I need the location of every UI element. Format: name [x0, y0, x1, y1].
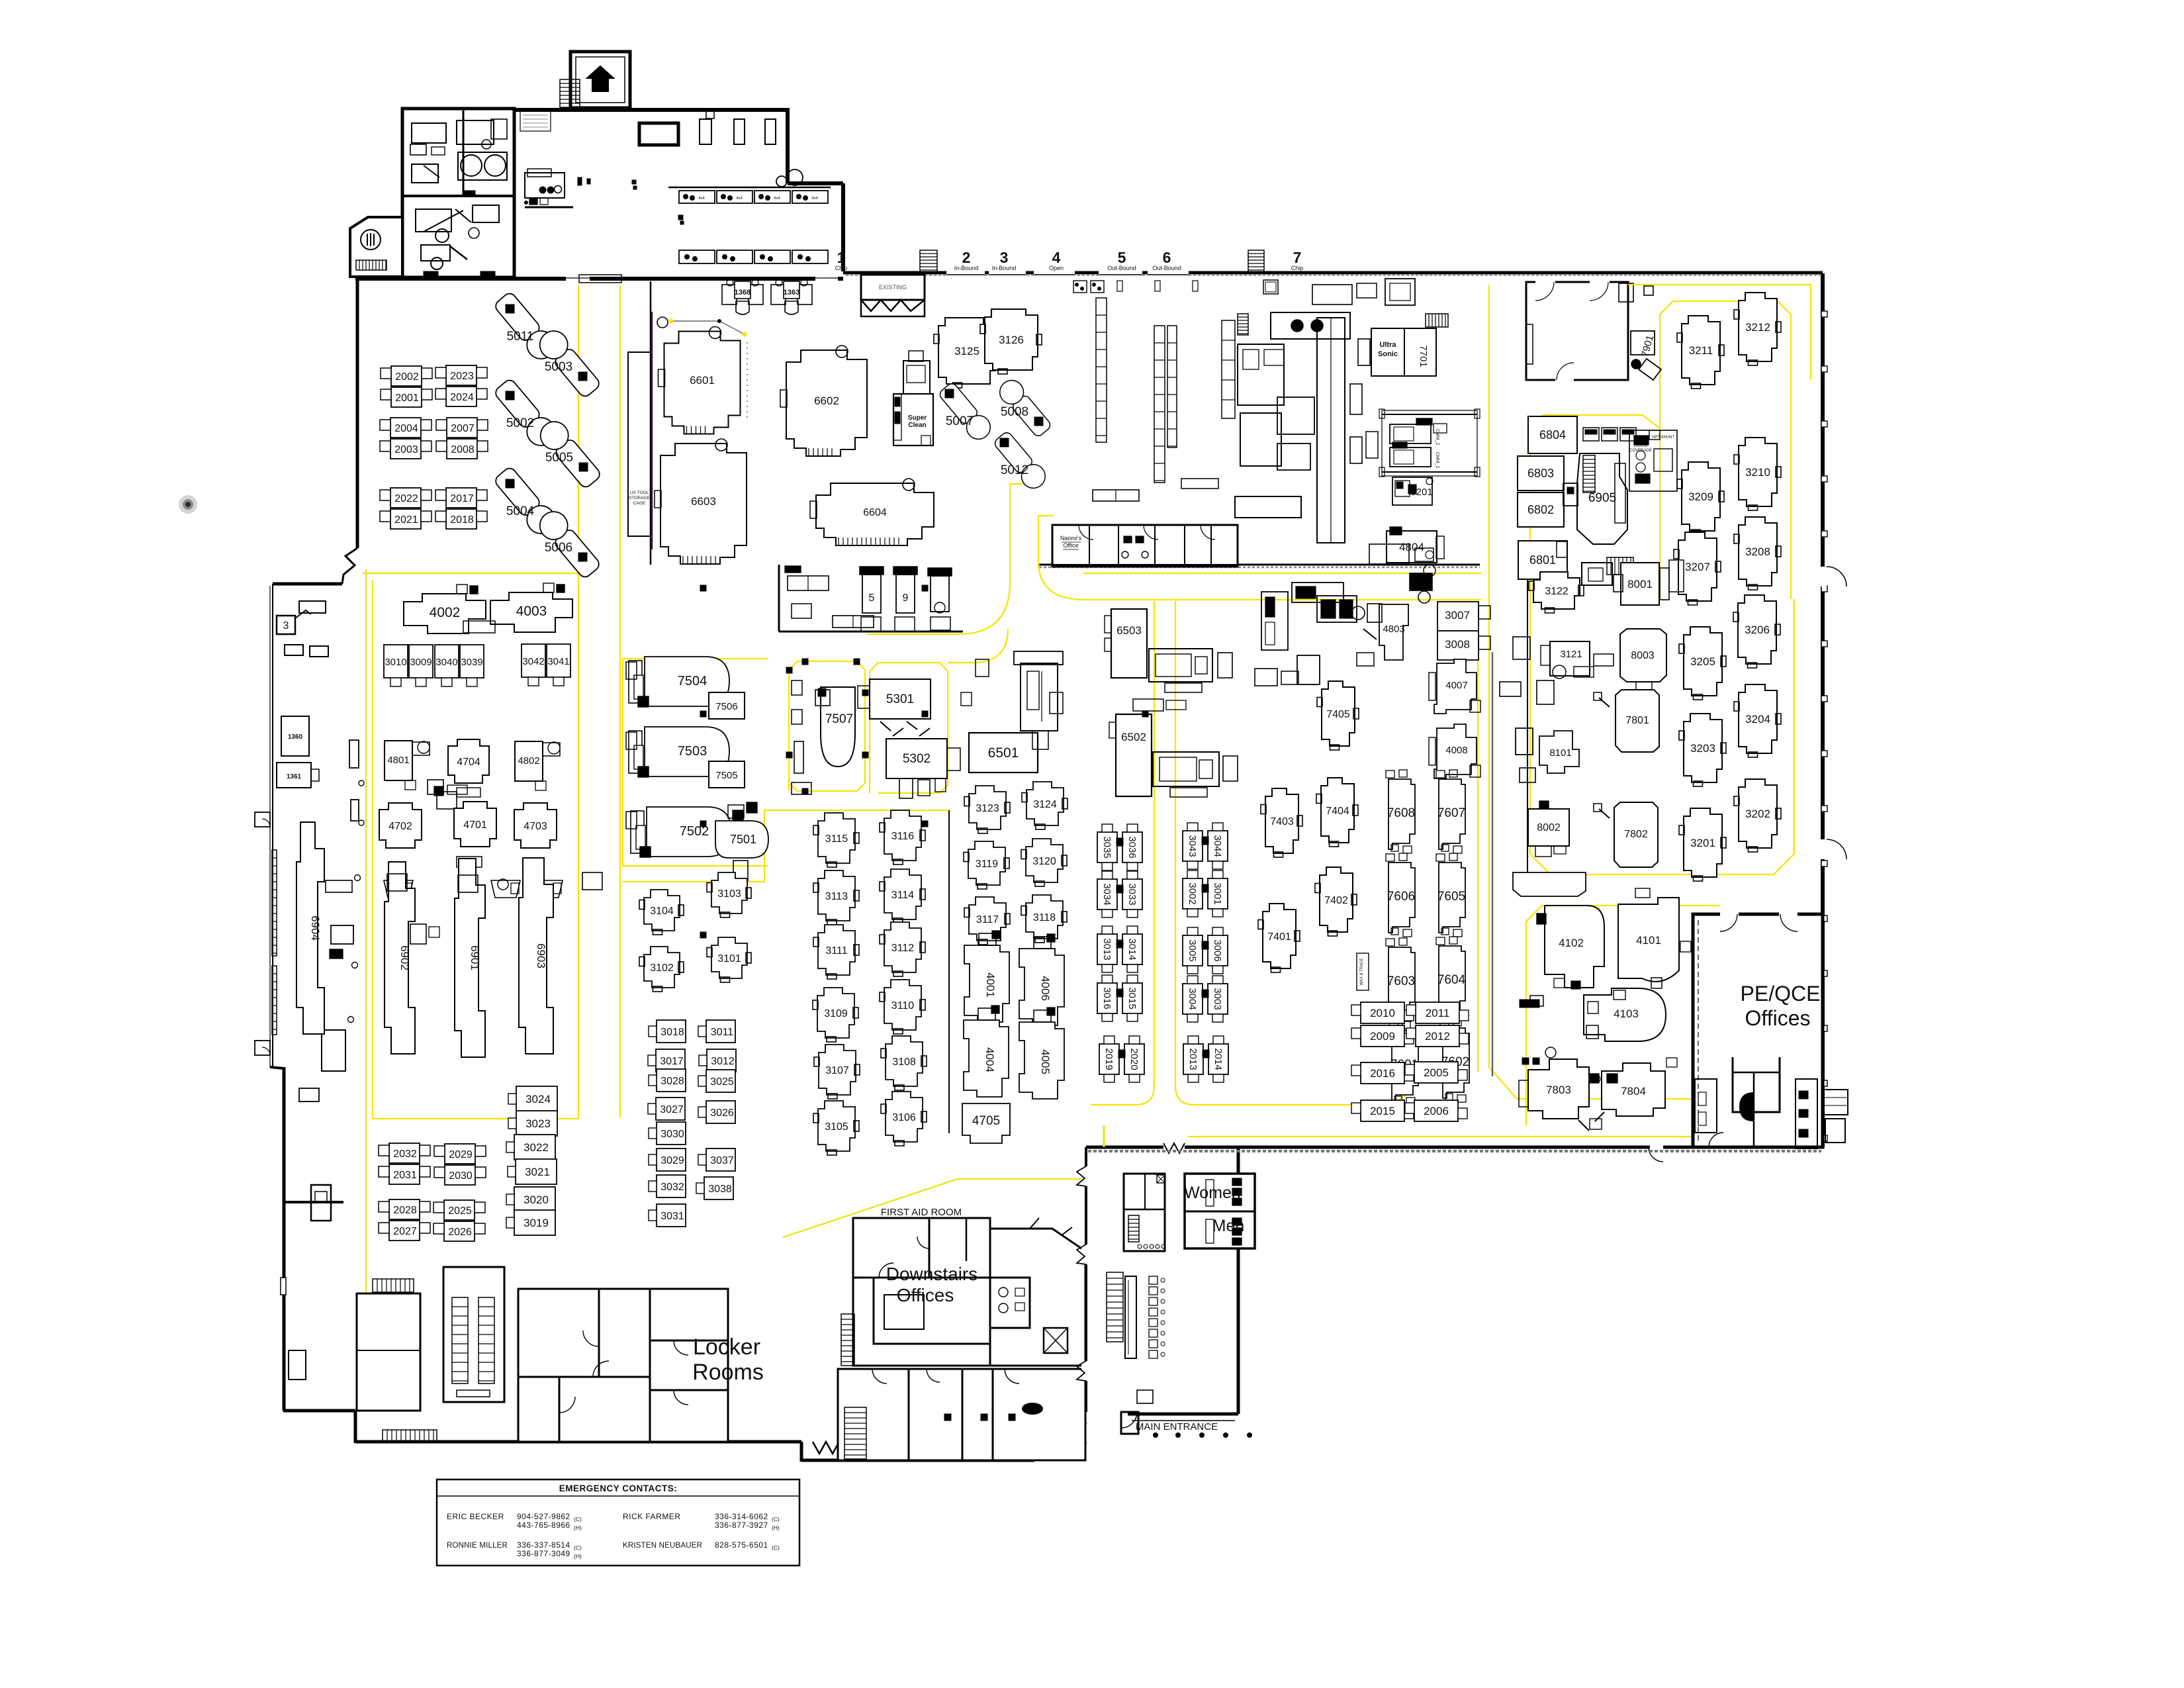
- svg-text:3024: 3024: [525, 1093, 551, 1105]
- svg-text:3007: 3007: [1445, 609, 1470, 622]
- svg-text:4002: 4002: [430, 605, 461, 620]
- svg-text:4103: 4103: [1614, 1008, 1639, 1020]
- svg-text:6801: 6801: [1529, 553, 1556, 567]
- svg-text:336-877-3049: 336-877-3049: [517, 1549, 570, 1558]
- svg-text:2007: 2007: [451, 423, 475, 434]
- svg-text:4x4: 4x4: [736, 197, 743, 201]
- svg-text:7606: 7606: [1387, 890, 1415, 904]
- svg-text:2026: 2026: [448, 1227, 472, 1238]
- svg-text:5008: 5008: [1001, 405, 1028, 419]
- svg-text:7803: 7803: [1546, 1084, 1571, 1096]
- svg-text:3109: 3109: [824, 1008, 848, 1019]
- svg-text:(C): (C): [574, 1516, 582, 1523]
- svg-text:Chip: Chip: [1291, 265, 1304, 271]
- svg-text:4x4: 4x4: [698, 197, 705, 201]
- svg-text:3125: 3125: [954, 345, 979, 357]
- svg-text:5002: 5002: [506, 416, 534, 430]
- svg-text:5004: 5004: [506, 504, 535, 518]
- svg-text:4102: 4102: [1559, 937, 1584, 949]
- svg-text:KRISTEN NEUBAUER: KRISTEN NEUBAUER: [623, 1542, 702, 1550]
- svg-text:6501: 6501: [988, 745, 1019, 761]
- svg-text:2006: 2006: [1424, 1105, 1449, 1117]
- svg-text:5301: 5301: [886, 692, 914, 706]
- svg-text:3102: 3102: [650, 962, 674, 974]
- svg-text:3016: 3016: [1101, 987, 1113, 1009]
- svg-text:3110: 3110: [891, 1000, 915, 1011]
- svg-text:Clean: Clean: [908, 422, 926, 429]
- svg-text:4x4: 4x4: [811, 197, 818, 201]
- svg-text:8003: 8003: [1631, 650, 1655, 661]
- svg-text:7608: 7608: [1387, 806, 1415, 820]
- svg-text:3210: 3210: [1745, 466, 1770, 479]
- svg-text:4702: 4702: [388, 821, 412, 832]
- svg-text:2003: 2003: [394, 444, 418, 455]
- svg-text:3203: 3203: [1690, 742, 1715, 755]
- svg-text:7507: 7507: [825, 712, 853, 726]
- svg-text:2031: 2031: [393, 1170, 417, 1181]
- svg-text:PE/QCE: PE/QCE: [1741, 982, 1821, 1006]
- svg-text:2011: 2011: [1426, 1007, 1450, 1019]
- svg-text:6601: 6601: [690, 374, 715, 387]
- svg-text:3118: 3118: [1033, 912, 1056, 923]
- svg-text:7501: 7501: [730, 833, 756, 846]
- svg-text:6502: 6502: [1121, 731, 1146, 743]
- svg-text:3020: 3020: [523, 1194, 549, 1206]
- svg-text:3040: 3040: [435, 657, 457, 668]
- svg-text:3036: 3036: [1126, 836, 1138, 858]
- svg-text:7401: 7401: [1267, 931, 1291, 943]
- svg-text:2030: 2030: [449, 1170, 473, 1182]
- svg-text:4007: 4007: [1445, 680, 1467, 691]
- svg-text:2002: 2002: [395, 371, 419, 383]
- svg-text:6903: 6903: [535, 943, 547, 968]
- svg-text:In-Bound: In-Bound: [954, 265, 979, 271]
- svg-text:Chip: Chip: [835, 265, 848, 271]
- svg-text:3010: 3010: [385, 657, 406, 668]
- svg-text:3209: 3209: [1688, 491, 1713, 503]
- svg-text:7506: 7506: [715, 701, 737, 712]
- svg-text:3201: 3201: [1690, 837, 1715, 849]
- svg-text:3025: 3025: [710, 1076, 734, 1088]
- svg-text:3019: 3019: [523, 1217, 549, 1229]
- svg-text:5: 5: [869, 592, 875, 604]
- svg-text:Offices: Offices: [1745, 1006, 1811, 1030]
- svg-text:2019: 2019: [1103, 1048, 1115, 1070]
- svg-text:3122: 3122: [1545, 586, 1569, 597]
- svg-text:2024: 2024: [450, 392, 474, 403]
- svg-text:3204: 3204: [1745, 713, 1770, 726]
- svg-text:4704: 4704: [457, 757, 480, 768]
- svg-text:7605: 7605: [1437, 890, 1465, 904]
- svg-text:Ultra: Ultra: [1379, 341, 1396, 349]
- svg-text:CAGE: CAGE: [633, 501, 646, 506]
- svg-text:6: 6: [1163, 249, 1171, 266]
- svg-text:2012: 2012: [1425, 1030, 1450, 1043]
- svg-text:WAX & TRACE: WAX & TRACE: [1360, 958, 1364, 985]
- svg-text:Rooms: Rooms: [692, 1360, 764, 1385]
- svg-text:4701: 4701: [463, 820, 487, 831]
- svg-text:2025: 2025: [448, 1205, 472, 1217]
- svg-text:3008: 3008: [1445, 638, 1470, 651]
- svg-text:6503: 6503: [1116, 624, 1142, 637]
- svg-text:(H): (H): [574, 1553, 582, 1560]
- svg-text:3034: 3034: [1101, 883, 1113, 905]
- svg-text:4004: 4004: [983, 1047, 996, 1072]
- svg-text:2010: 2010: [1370, 1007, 1395, 1019]
- svg-text:Offices: Offices: [897, 1285, 954, 1305]
- svg-text:3106: 3106: [892, 1112, 916, 1123]
- svg-text:3111: 3111: [825, 945, 847, 957]
- svg-text:Women: Women: [1184, 1184, 1241, 1202]
- svg-text:3012: 3012: [711, 1056, 735, 1067]
- svg-text:2021: 2021: [394, 514, 418, 526]
- svg-text:5011: 5011: [507, 330, 534, 344]
- svg-text:2005: 2005: [1424, 1066, 1449, 1079]
- svg-text:3044: 3044: [1212, 835, 1223, 857]
- svg-text:3009: 3009: [410, 657, 432, 668]
- svg-text:2008: 2008: [451, 444, 475, 455]
- svg-text:5: 5: [1118, 249, 1126, 266]
- svg-text:2017: 2017: [450, 493, 474, 504]
- svg-text:RICK FARMER: RICK FARMER: [623, 1512, 681, 1521]
- svg-text:6905: 6905: [1588, 491, 1616, 505]
- svg-text:6603: 6603: [691, 495, 716, 508]
- svg-text:EMERGENCY CONTACTS:: EMERGENCY CONTACTS:: [559, 1483, 678, 1493]
- svg-text:5003: 5003: [545, 360, 572, 374]
- svg-text:7404: 7404: [1326, 806, 1349, 817]
- svg-text:3202: 3202: [1745, 808, 1770, 820]
- svg-text:3005: 3005: [1187, 939, 1198, 961]
- svg-text:7804: 7804: [1621, 1085, 1646, 1098]
- svg-text:8001: 8001: [1627, 578, 1653, 590]
- svg-text:3026: 3026: [710, 1107, 734, 1119]
- svg-text:7801: 7801: [1625, 715, 1649, 726]
- svg-text:STORAGE: STORAGE: [629, 496, 650, 500]
- svg-text:8201: 8201: [1410, 487, 1432, 498]
- svg-text:3112: 3112: [891, 943, 915, 954]
- svg-text:3042: 3042: [522, 656, 544, 667]
- svg-text:3002: 3002: [1187, 882, 1198, 904]
- svg-text:Out-Bound: Out-Bound: [1152, 265, 1181, 271]
- svg-text:7: 7: [1293, 249, 1302, 266]
- svg-text:4804: 4804: [1399, 541, 1424, 553]
- svg-text:3108: 3108: [892, 1056, 916, 1068]
- svg-text:3123: 3123: [976, 803, 999, 814]
- svg-text:4008: 4008: [1445, 745, 1467, 756]
- svg-text:4803: 4803: [1383, 624, 1404, 635]
- svg-text:7505: 7505: [715, 770, 737, 781]
- svg-text:336-314-6062: 336-314-6062: [715, 1512, 768, 1521]
- svg-text:RONNIE MILLER: RONNIE MILLER: [447, 1542, 508, 1550]
- svg-text:5012: 5012: [1001, 463, 1028, 477]
- svg-text:336-877-3927: 336-877-3927: [715, 1521, 768, 1530]
- svg-text:6802: 6802: [1527, 503, 1554, 516]
- svg-text:3003: 3003: [1212, 988, 1223, 1009]
- svg-text:6602: 6602: [814, 395, 839, 407]
- svg-text:3113: 3113: [825, 891, 848, 902]
- svg-text:3: 3: [1000, 249, 1009, 266]
- svg-text:2001: 2001: [395, 393, 419, 404]
- svg-text:3011: 3011: [711, 1027, 734, 1038]
- svg-text:(C): (C): [574, 1544, 582, 1551]
- svg-text:3043: 3043: [1187, 835, 1198, 857]
- svg-text:6804: 6804: [1539, 428, 1566, 442]
- svg-text:7503: 7503: [678, 744, 707, 759]
- svg-text:4001: 4001: [984, 972, 997, 998]
- svg-text:2023: 2023: [450, 371, 474, 382]
- svg-text:2028: 2028: [393, 1205, 417, 1216]
- svg-text:336-337-8514: 336-337-8514: [517, 1540, 570, 1550]
- svg-text:3114: 3114: [891, 890, 915, 901]
- svg-text:5302: 5302: [903, 752, 931, 766]
- svg-text:7402: 7402: [1324, 895, 1348, 906]
- svg-text:7405: 7405: [1326, 709, 1350, 720]
- svg-text:3101: 3101: [717, 953, 741, 964]
- svg-text:3120: 3120: [1032, 856, 1056, 867]
- svg-text:7604: 7604: [1437, 973, 1466, 987]
- svg-text:(H): (H): [574, 1524, 582, 1531]
- svg-text:9: 9: [903, 592, 909, 604]
- svg-text:3208: 3208: [1745, 545, 1770, 558]
- svg-text:US TOOL: US TOOL: [630, 491, 649, 495]
- svg-text:CMM_1: CMM_1: [1435, 452, 1439, 469]
- svg-text:(C): (C): [772, 1516, 780, 1523]
- svg-text:5005: 5005: [545, 451, 573, 465]
- svg-text:2016: 2016: [1370, 1067, 1395, 1080]
- svg-text:3028: 3028: [660, 1076, 684, 1087]
- svg-text:1: 1: [837, 249, 846, 266]
- svg-text:CMM_2: CMM_2: [1435, 429, 1439, 445]
- svg-text:EXISTING: EXISTING: [879, 284, 907, 291]
- svg-text:3115: 3115: [825, 833, 848, 845]
- svg-text:COVERAGE: COVERAGE: [1629, 449, 1652, 453]
- svg-text:3029: 3029: [660, 1155, 684, 1166]
- svg-text:3032: 3032: [660, 1182, 684, 1193]
- svg-text:2027: 2027: [393, 1226, 417, 1237]
- svg-text:3018: 3018: [660, 1027, 684, 1038]
- svg-text:MAIN ENTRANCE: MAIN ENTRANCE: [1136, 1421, 1218, 1432]
- svg-text:2: 2: [962, 249, 971, 266]
- svg-text:3211: 3211: [1689, 344, 1713, 357]
- svg-text:6904: 6904: [309, 915, 322, 941]
- svg-text:4703: 4703: [523, 821, 547, 832]
- svg-text:1363: 1363: [784, 289, 799, 297]
- svg-text:4: 4: [1052, 249, 1061, 266]
- svg-text:Men: Men: [1212, 1217, 1245, 1235]
- svg-text:Office: Office: [1063, 542, 1078, 549]
- svg-text:3017: 3017: [660, 1056, 684, 1067]
- svg-text:7403: 7403: [1270, 816, 1294, 827]
- svg-text:Open: Open: [1049, 265, 1064, 271]
- svg-text:3039: 3039: [461, 657, 482, 668]
- svg-text:Naomi's: Naomi's: [1060, 535, 1082, 541]
- svg-text:FIRST AID ROOM: FIRST AID ROOM: [881, 1207, 962, 1218]
- svg-text:2013: 2013: [1187, 1048, 1199, 1070]
- svg-text:Downstairs: Downstairs: [886, 1264, 978, 1284]
- svg-text:2020: 2020: [1128, 1048, 1140, 1070]
- svg-text:3014: 3014: [1126, 938, 1138, 960]
- svg-text:3105: 3105: [825, 1121, 848, 1133]
- svg-text:4006: 4006: [1039, 976, 1052, 1001]
- svg-text:3124: 3124: [1033, 799, 1057, 810]
- svg-text:3126: 3126: [999, 334, 1024, 346]
- svg-text:3037: 3037: [710, 1155, 734, 1166]
- svg-text:2014: 2014: [1212, 1048, 1224, 1070]
- svg-text:2018: 2018: [450, 514, 474, 526]
- svg-text:3015: 3015: [1126, 987, 1138, 1009]
- svg-text:1361: 1361: [287, 773, 302, 780]
- svg-text:5006: 5006: [545, 541, 572, 555]
- svg-text:4705: 4705: [972, 1114, 1000, 1128]
- svg-text:3: 3: [283, 620, 289, 632]
- svg-text:3207: 3207: [1685, 561, 1710, 573]
- svg-text:3119: 3119: [976, 859, 999, 870]
- svg-text:3116: 3116: [891, 831, 915, 842]
- svg-text:Locker: Locker: [693, 1335, 760, 1360]
- svg-text:4802: 4802: [518, 755, 539, 767]
- svg-text:2009: 2009: [1370, 1030, 1395, 1043]
- svg-text:3006: 3006: [1212, 939, 1223, 961]
- svg-text:Sonic: Sonic: [1378, 350, 1398, 358]
- svg-text:6803: 6803: [1527, 467, 1554, 480]
- svg-text:3104: 3104: [650, 906, 674, 917]
- svg-text:7504: 7504: [678, 674, 707, 688]
- svg-text:4801: 4801: [387, 755, 409, 766]
- svg-text:3030: 3030: [660, 1129, 684, 1140]
- svg-text:443-765-8966: 443-765-8966: [517, 1521, 570, 1530]
- svg-text:2022: 2022: [394, 493, 418, 504]
- svg-text:5007: 5007: [946, 414, 974, 428]
- svg-text:(H): (H): [772, 1524, 780, 1531]
- svg-text:3013: 3013: [1101, 938, 1113, 960]
- svg-text:2032: 2032: [393, 1149, 417, 1160]
- svg-text:7603: 7603: [1387, 974, 1415, 988]
- svg-text:4x4: 4x4: [774, 197, 780, 201]
- svg-text:1368: 1368: [735, 289, 751, 297]
- svg-text:3038: 3038: [708, 1184, 732, 1195]
- svg-text:3022: 3022: [523, 1141, 549, 1154]
- svg-text:3023: 3023: [525, 1117, 551, 1130]
- svg-text:3031: 3031: [660, 1211, 684, 1222]
- svg-text:In-Bound: In-Bound: [992, 265, 1017, 271]
- svg-text:3103: 3103: [717, 888, 741, 900]
- svg-text:4101: 4101: [1636, 934, 1661, 947]
- svg-text:904-527-9862: 904-527-9862: [517, 1512, 570, 1521]
- svg-text:3035: 3035: [1101, 836, 1113, 858]
- svg-text:3021: 3021: [525, 1166, 550, 1178]
- svg-text:7802: 7802: [1624, 829, 1648, 840]
- svg-text:3004: 3004: [1187, 988, 1198, 1009]
- svg-text:Out-Bound: Out-Bound: [1107, 265, 1136, 271]
- svg-text:ERIC BECKER: ERIC BECKER: [447, 1512, 504, 1521]
- svg-text:Super: Super: [908, 414, 927, 422]
- svg-text:4003: 4003: [516, 604, 547, 619]
- svg-text:3121: 3121: [1560, 649, 1582, 660]
- svg-text:8101: 8101: [1549, 747, 1571, 759]
- svg-text:3206: 3206: [1745, 624, 1770, 636]
- svg-text:8002: 8002: [1537, 822, 1561, 833]
- svg-text:HPT SHUNT: HPT SHUNT: [1652, 436, 1675, 440]
- svg-text:7607: 7607: [1437, 806, 1465, 820]
- svg-text:3033: 3033: [1126, 883, 1138, 905]
- svg-text:3212: 3212: [1745, 321, 1770, 334]
- svg-text:6901: 6901: [469, 945, 481, 970]
- svg-text:3107: 3107: [825, 1065, 849, 1076]
- svg-text:3027: 3027: [660, 1104, 684, 1115]
- svg-text:3205: 3205: [1690, 655, 1715, 668]
- svg-text:2015: 2015: [1370, 1105, 1395, 1117]
- svg-text:(C): (C): [772, 1544, 780, 1551]
- svg-text:3041: 3041: [547, 656, 569, 667]
- svg-text:4005: 4005: [1039, 1049, 1052, 1074]
- svg-text:1360: 1360: [288, 733, 303, 741]
- svg-text:2029: 2029: [449, 1149, 473, 1160]
- svg-text:828-575-6501: 828-575-6501: [715, 1540, 768, 1550]
- svg-text:2004: 2004: [394, 423, 418, 434]
- svg-text:CRANE: CRANE: [1633, 444, 1647, 448]
- svg-text:3001: 3001: [1212, 882, 1223, 904]
- svg-text:6604: 6604: [863, 507, 887, 518]
- svg-text:3117: 3117: [976, 914, 999, 925]
- svg-text:GOODS: GOODS: [1633, 440, 1648, 444]
- svg-text:7701: 7701: [1418, 345, 1429, 367]
- svg-text:6902: 6902: [398, 945, 411, 970]
